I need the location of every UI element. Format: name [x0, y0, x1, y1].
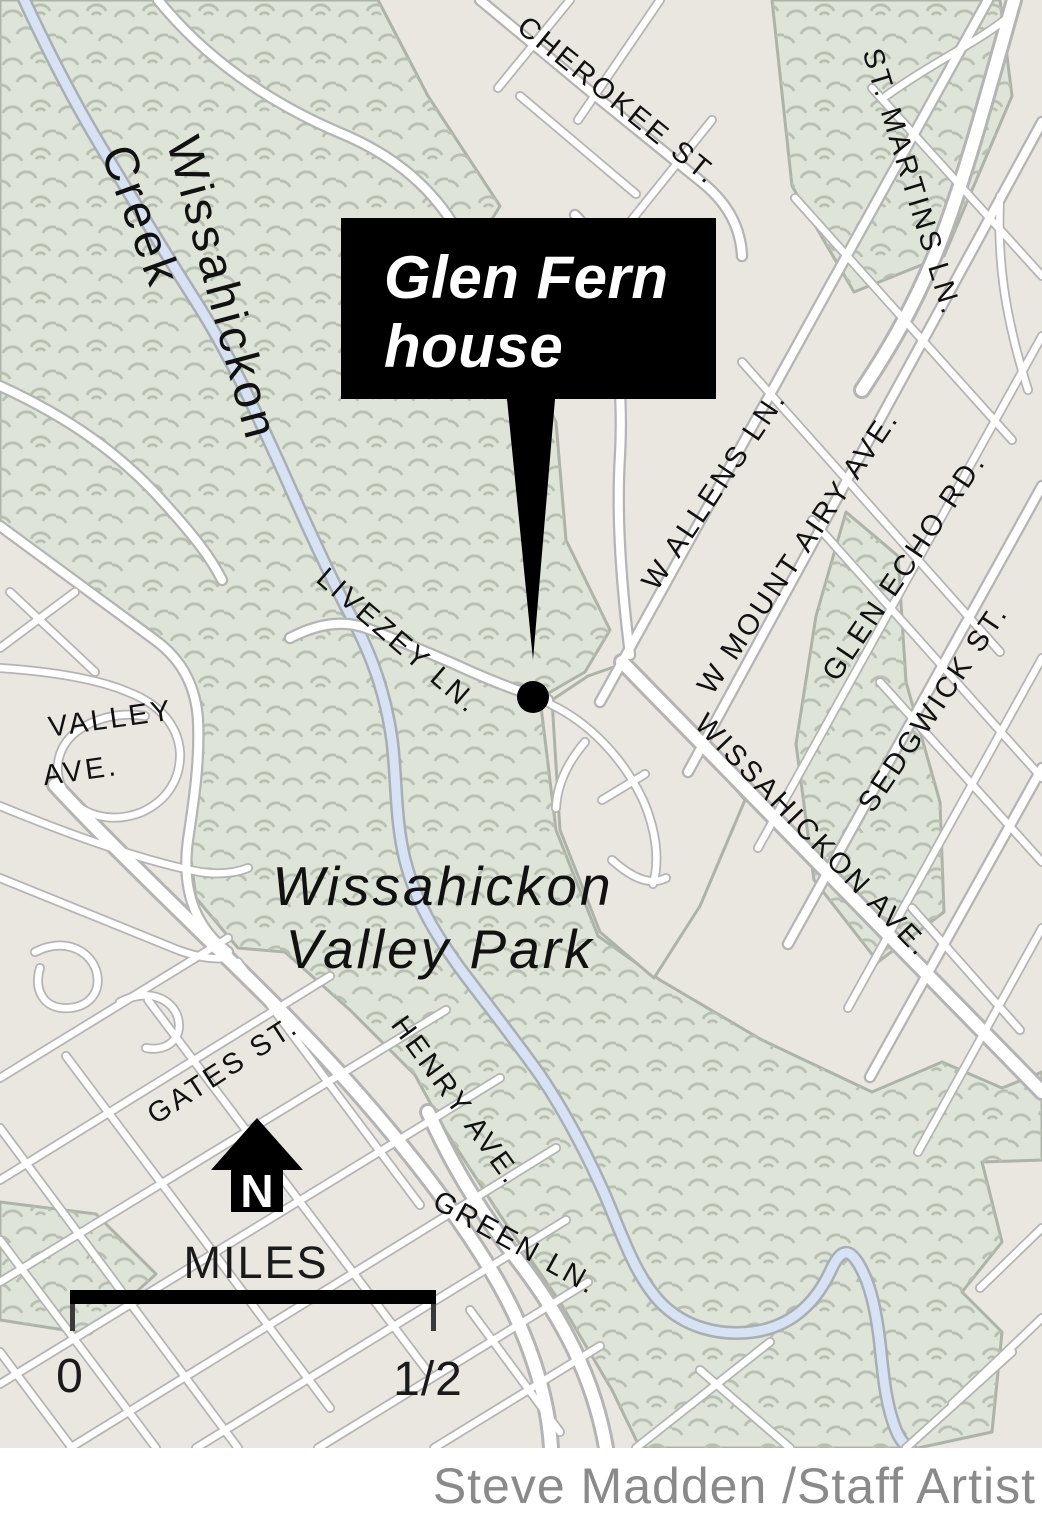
- callout-title-line1: Glen Fern: [384, 244, 669, 311]
- scale-title: MILES: [183, 1237, 328, 1288]
- label-valley-park-line2: Valley Park: [285, 918, 594, 980]
- location-dot: [517, 681, 549, 713]
- scale-bar-rect: [70, 1290, 436, 1304]
- map-canvas: CHEROKEE ST. ST. MARTINS LN. W ALLENS LN…: [0, 0, 1042, 1516]
- callout-title-line2: house: [384, 313, 563, 380]
- locator-map: CHEROKEE ST. ST. MARTINS LN. W ALLENS LN…: [0, 0, 1042, 1516]
- label-valley-park-line1: Wissahickon: [272, 855, 613, 917]
- scale-start: 0: [56, 1350, 84, 1403]
- credit-line: Steve Madden /Staff Artist: [433, 1458, 1036, 1514]
- scale-end: 1/2: [393, 1353, 463, 1406]
- north-arrow-label: N: [240, 1165, 273, 1217]
